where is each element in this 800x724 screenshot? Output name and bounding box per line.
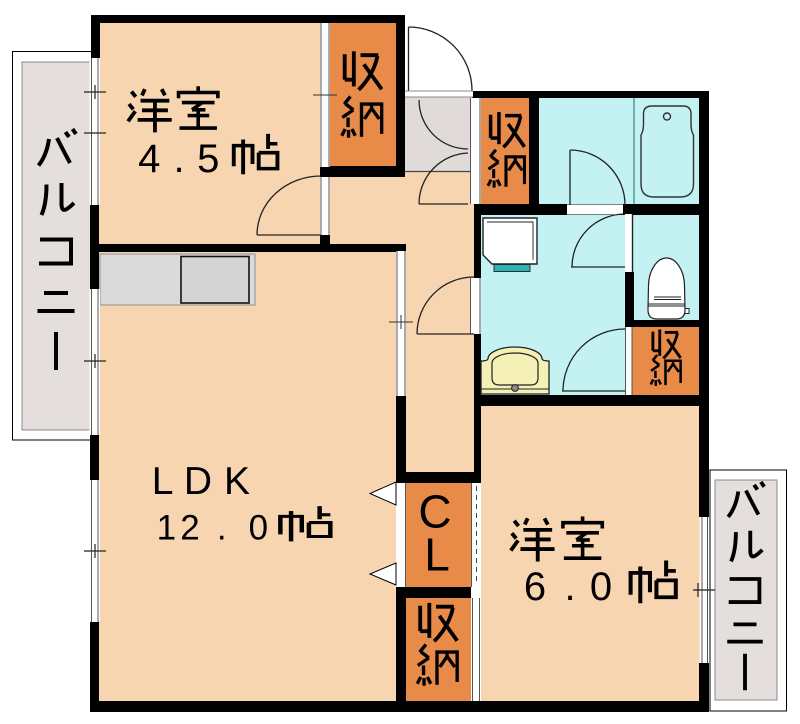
- svg-text:5: 5: [197, 137, 219, 181]
- svg-text:.: .: [173, 137, 184, 181]
- svg-text:L: L: [152, 460, 174, 503]
- svg-text:0: 0: [249, 509, 268, 548]
- svg-text:4: 4: [138, 137, 160, 181]
- svg-text:.: .: [564, 565, 575, 609]
- svg-text:D: D: [184, 460, 212, 503]
- svg-text:.: .: [217, 509, 227, 548]
- svg-text:K: K: [224, 460, 250, 503]
- svg-text:0: 0: [590, 565, 612, 609]
- svg-text:2: 2: [180, 509, 199, 548]
- svg-text:6: 6: [524, 565, 546, 609]
- svg-text:1: 1: [157, 509, 176, 548]
- svg-text:L: L: [424, 529, 450, 581]
